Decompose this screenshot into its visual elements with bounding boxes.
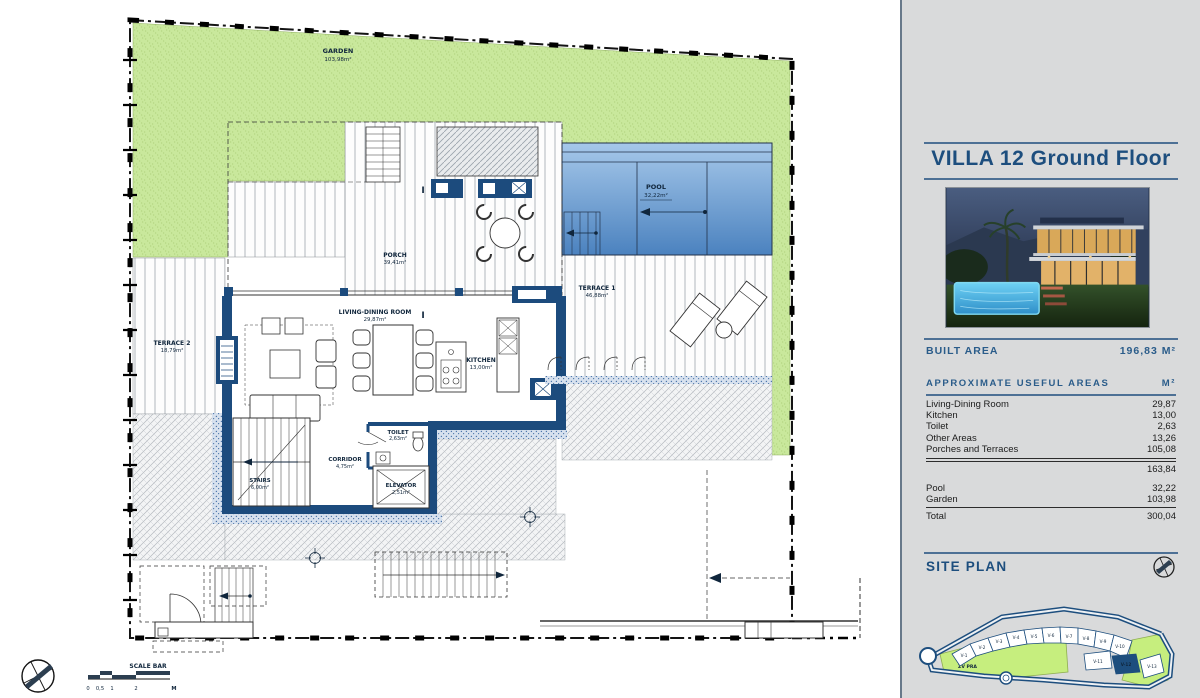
svg-text:LIVING-DINING ROOM: LIVING-DINING ROOM [339, 309, 412, 316]
svg-text:39,41m²: 39,41m² [384, 259, 407, 266]
table-row: Pool32,22 [926, 483, 1176, 494]
svg-text:GARDEN: GARDEN [323, 47, 354, 55]
divider [924, 552, 1178, 554]
built-area-label: BUILT AREA [926, 345, 998, 357]
svg-text:PORCH: PORCH [383, 252, 407, 259]
info-panel: VILLA 12 Ground Floor [900, 0, 1200, 698]
table-row: Other Areas13,26 [926, 433, 1176, 444]
total-row: Total300,04 [926, 507, 1176, 522]
svg-text:2,63m²: 2,63m² [389, 436, 407, 442]
toilet: TOILET 2,63m² [358, 424, 430, 468]
divider [924, 338, 1178, 340]
svg-text:SCALE BAR: SCALE BAR [129, 663, 167, 670]
divider [924, 142, 1178, 144]
svg-text:V-3: V-3 [996, 639, 1003, 644]
svg-text:V-5: V-5 [1031, 634, 1038, 639]
site-plan-heading: SITE PLAN [926, 559, 1007, 574]
bbq-counter [431, 179, 532, 198]
svg-text:0: 0 [86, 686, 89, 692]
subtotal-row: 163,84 [926, 464, 1176, 475]
kitchen: KITCHEN 13,00m² [436, 318, 519, 392]
divider [924, 178, 1178, 180]
svg-text:V-1: V-1 [961, 653, 968, 658]
svg-text:V-11: V-11 [1093, 659, 1103, 664]
svg-text:0,5: 0,5 [96, 686, 104, 692]
svg-text:V-10: V-10 [1115, 644, 1125, 649]
svg-text:TERRACE 1: TERRACE 1 [579, 285, 616, 292]
living-room [245, 318, 433, 421]
subtotal-divider [926, 458, 1176, 462]
svg-text:18,79m²: 18,79m² [161, 347, 184, 354]
page: GARDEN 103,98m² TERRACE 2 18,79m² TERRAC… [0, 0, 1200, 698]
svg-text:13,00m²: 13,00m² [470, 364, 493, 371]
scale-bar: SCALE BAR 0 0,5 1 2 M [86, 663, 176, 692]
svg-text:V-2: V-2 [979, 645, 986, 650]
villa-photo-render [946, 188, 1149, 327]
entry-portico [745, 622, 823, 638]
svg-text:V-6: V-6 [1048, 633, 1055, 638]
side-stair [215, 568, 253, 625]
svg-text:4,75m²: 4,75m² [336, 464, 354, 470]
svg-text:103,98m²: 103,98m² [324, 56, 351, 63]
svg-text:32,22m²: 32,22m² [644, 192, 668, 199]
built-area-value: 196,83 M² [1120, 345, 1176, 357]
page-title: VILLA 12 Ground Floor [902, 147, 1200, 171]
table-row: Garden103,98 [926, 494, 1176, 505]
svg-text:M: M [171, 686, 176, 692]
entry-portico [153, 622, 253, 652]
elevator: ELEVATOR 2,51m² [373, 466, 429, 508]
built-area-row: BUILT AREA 196,83 M² [926, 345, 1176, 357]
floor-plan-sheet: GARDEN 103,98m² TERRACE 2 18,79m² TERRAC… [0, 0, 900, 698]
svg-text:46,88m²: 46,88m² [586, 292, 609, 299]
table-row: Toilet2,63 [926, 421, 1176, 432]
svg-text:STAIRS: STAIRS [249, 478, 270, 484]
villa-photo [945, 187, 1150, 328]
areas-header: APPROXIMATE USEFUL AREAS M² [926, 378, 1176, 396]
compass-icon [1152, 555, 1176, 579]
svg-text:V-4: V-4 [1013, 635, 1020, 640]
svg-text:I: I [421, 186, 424, 196]
svg-text:KITCHEN: KITCHEN [466, 357, 496, 364]
svg-text:V-13: V-13 [1147, 664, 1157, 669]
svg-text:2,51m²: 2,51m² [392, 490, 410, 496]
table-row: Porches and Terraces105,08 [926, 444, 1176, 455]
svg-text:CORRIDOR: CORRIDOR [328, 457, 362, 463]
svg-text:TERRACE 2: TERRACE 2 [154, 340, 191, 347]
useful-areas-table: APPROXIMATE USEFUL AREAS M² Living-Dinin… [926, 378, 1176, 522]
site-plan-map: ZV PRA [914, 592, 1186, 690]
svg-text:I: I [421, 311, 424, 321]
north-compass [22, 660, 54, 692]
svg-text:2: 2 [134, 686, 137, 692]
svg-text:V-12: V-12 [1121, 662, 1132, 667]
svg-text:ELEVATOR: ELEVATOR [386, 483, 418, 489]
svg-text:V-7: V-7 [1066, 634, 1073, 639]
stairs: STAIRS 6,00m² [233, 418, 310, 506]
svg-text:6,00m²: 6,00m² [251, 485, 269, 491]
svg-text:1: 1 [110, 686, 113, 692]
floor-plan-drawing: GARDEN 103,98m² TERRACE 2 18,79m² TERRAC… [0, 0, 900, 698]
table-row: Kitchen13,00 [926, 410, 1176, 421]
svg-text:V-9: V-9 [1100, 639, 1107, 644]
svg-text:V-8: V-8 [1083, 636, 1090, 641]
exterior-stair [366, 127, 400, 182]
table-row: Living-Dining Room29,87 [926, 399, 1176, 410]
svg-text:POOL: POOL [646, 183, 666, 191]
svg-text:29,87m²: 29,87m² [364, 316, 387, 323]
pool: POOL 32,22m² [562, 143, 772, 255]
